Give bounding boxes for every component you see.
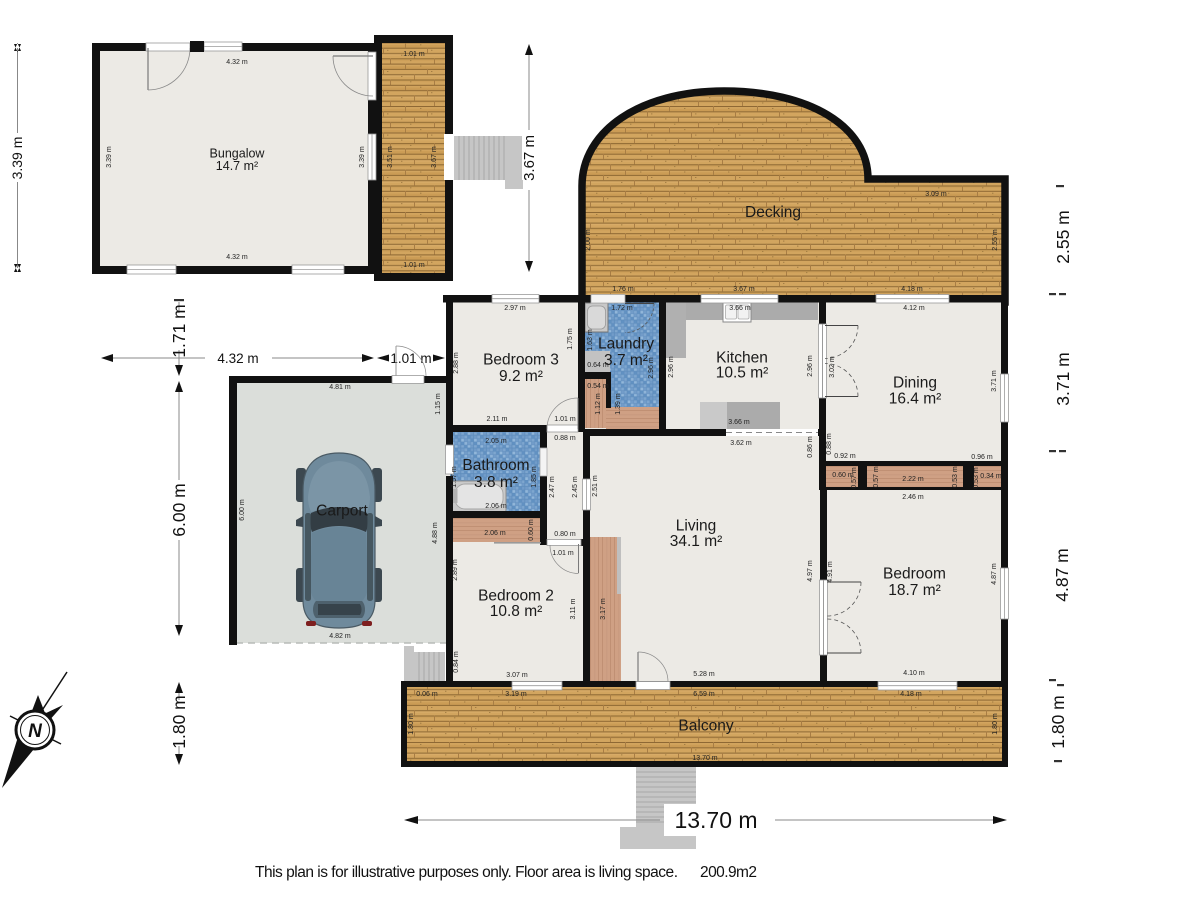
svg-text:4.32 m: 4.32 m [226,59,248,66]
svg-text:Bedroom 3: Bedroom 3 [483,352,559,369]
svg-text:2.96 m: 2.96 m [807,355,814,377]
svg-text:2.55 m: 2.55 m [992,229,999,251]
svg-text:0.53 m: 0.53 m [973,467,980,489]
svg-text:2.89 m: 2.89 m [452,559,459,581]
svg-text:Bedroom 2: Bedroom 2 [478,588,554,605]
svg-text:2.88 m: 2.88 m [453,352,460,374]
svg-text:2.96 m: 2.96 m [648,357,655,379]
svg-text:1.01 m: 1.01 m [390,351,431,366]
svg-text:3.71 m: 3.71 m [991,370,998,392]
svg-text:0.53 m: 0.53 m [952,466,959,488]
svg-text:4.10 m: 4.10 m [903,670,925,677]
svg-text:1.71 m: 1.71 m [169,304,189,358]
svg-text:Laundry: Laundry [598,336,654,353]
svg-text:1.80 m: 1.80 m [992,713,999,735]
svg-text:2.45 m: 2.45 m [572,476,579,498]
svg-text:6.00 m: 6.00 m [239,499,246,521]
svg-text:This plan is for illustrative: This plan is for illustrative purposes o… [255,864,678,881]
svg-text:1.15 m: 1.15 m [435,393,442,415]
svg-text:1.75 m: 1.75 m [567,328,574,350]
svg-text:3.62 m: 3.62 m [730,440,752,447]
svg-text:4.32 m: 4.32 m [226,254,248,261]
svg-text:10.8 m²: 10.8 m² [490,603,543,620]
svg-text:3.39 m: 3.39 m [359,146,366,168]
svg-text:4.87 m: 4.87 m [991,563,998,585]
svg-text:4.87 m: 4.87 m [1052,548,1072,602]
svg-text:N: N [28,721,43,742]
svg-text:3.39 m: 3.39 m [106,146,113,168]
svg-text:0.64 m: 0.64 m [587,362,609,369]
svg-text:1.72 m: 1.72 m [611,305,633,312]
svg-text:3.66 m: 3.66 m [728,419,750,426]
svg-text:3.07 m: 3.07 m [506,672,528,679]
svg-text:1.12 m: 1.12 m [595,393,602,415]
svg-text:2.97 m: 2.97 m [504,305,526,312]
svg-text:2.06 m: 2.06 m [485,503,507,510]
svg-text:0.84 m: 0.84 m [453,651,460,673]
svg-text:4.32 m: 4.32 m [217,351,258,366]
svg-text:3.7 m²: 3.7 m² [604,352,648,369]
svg-text:1.80 m: 1.80 m [408,713,415,735]
svg-text:3.67 m: 3.67 m [431,146,438,168]
svg-text:4.81 m: 4.81 m [329,384,351,391]
svg-text:0.86 m: 0.86 m [807,436,814,458]
svg-text:2.00 m: 2.00 m [585,229,592,251]
svg-text:Living: Living [676,518,717,535]
svg-text:2.05 m: 2.05 m [485,438,507,445]
svg-text:3.66 m: 3.66 m [729,305,751,312]
svg-text:0.06 m: 0.06 m [416,691,438,698]
svg-text:4.88 m: 4.88 m [432,522,439,544]
svg-text:3.39 m: 3.39 m [9,137,25,180]
svg-text:1.01 m: 1.01 m [554,416,576,423]
svg-text:0.96 m: 0.96 m [971,454,993,461]
svg-text:2.96 m: 2.96 m [668,356,675,378]
svg-text:Balcony: Balcony [678,718,733,735]
svg-text:200.9m2: 200.9m2 [700,864,757,881]
svg-text:1.01 m: 1.01 m [552,550,574,557]
svg-text:4.18 m: 4.18 m [901,286,923,293]
svg-text:0.80 m: 0.80 m [554,531,576,538]
svg-text:4.18 m: 4.18 m [900,691,922,698]
svg-text:6.59 m: 6.59 m [693,691,715,698]
svg-text:3.17 m: 3.17 m [600,598,607,620]
svg-text:0.54 m: 0.54 m [587,383,609,390]
svg-text:3.67 m: 3.67 m [733,286,755,293]
svg-text:0.92 m: 0.92 m [834,453,856,460]
svg-text:1.57 m: 1.57 m [451,466,458,488]
svg-text:3.02 m: 3.02 m [829,356,836,378]
svg-text:2.55 m: 2.55 m [1053,210,1073,264]
svg-text:0.88 m: 0.88 m [554,435,576,442]
svg-text:1.63 m: 1.63 m [587,329,594,351]
svg-text:3.67 m: 3.67 m [521,135,538,181]
svg-text:2.22 m: 2.22 m [902,476,924,483]
svg-text:0.60 m: 0.60 m [528,519,535,541]
svg-text:13.70 m: 13.70 m [692,755,717,762]
svg-text:1.80 m: 1.80 m [169,695,189,749]
svg-text:Carport: Carport [316,503,368,520]
svg-text:10.5 m²: 10.5 m² [716,365,769,382]
svg-text:34.1 m²: 34.1 m² [670,533,723,550]
svg-text:Decking: Decking [745,204,801,221]
svg-text:3.09 m: 3.09 m [925,191,947,198]
svg-text:3.51 m: 3.51 m [387,146,394,168]
svg-text:2.46 m: 2.46 m [902,494,924,501]
svg-text:1.76 m: 1.76 m [612,286,634,293]
svg-text:3.19 m: 3.19 m [505,691,527,698]
svg-text:4.82 m: 4.82 m [329,633,351,640]
svg-text:5.28 m: 5.28 m [693,671,715,678]
svg-text:0.57 m: 0.57 m [873,466,880,488]
svg-text:2.11 m: 2.11 m [487,416,508,423]
svg-text:3.11 m: 3.11 m [570,598,577,619]
svg-text:2.51 m: 2.51 m [592,475,599,497]
svg-text:6.00 m: 6.00 m [169,483,189,537]
svg-text:2.47 m: 2.47 m [549,476,556,498]
svg-text:1.01 m: 1.01 m [403,51,425,58]
svg-text:14.7 m²: 14.7 m² [216,159,258,173]
svg-text:18.7 m²: 18.7 m² [888,582,941,599]
svg-text:2.06 m: 2.06 m [484,530,506,537]
svg-text:4.97 m: 4.97 m [807,560,814,582]
svg-text:1.85 m: 1.85 m [531,466,538,488]
svg-text:1.80 m: 1.80 m [1048,695,1068,749]
svg-text:Dining: Dining [893,375,937,392]
svg-text:4.91 m: 4.91 m [827,561,834,583]
svg-text:Bathroom: Bathroom [462,457,529,474]
svg-text:3.71 m: 3.71 m [1053,352,1073,406]
svg-text:0.34 m: 0.34 m [980,473,1002,480]
svg-text:0.57 m: 0.57 m [851,467,858,489]
svg-text:13.70 m: 13.70 m [674,807,757,833]
svg-text:1.39 m: 1.39 m [615,393,622,415]
svg-text:9.2 m²: 9.2 m² [499,368,543,385]
svg-text:Bedroom: Bedroom [883,566,946,583]
svg-text:3.8 m²: 3.8 m² [474,474,518,491]
svg-text:1.01 m: 1.01 m [403,262,425,269]
svg-text:16.4 m²: 16.4 m² [889,391,942,408]
svg-text:4.12 m: 4.12 m [903,305,925,312]
svg-text:0.88 m: 0.88 m [826,433,833,455]
